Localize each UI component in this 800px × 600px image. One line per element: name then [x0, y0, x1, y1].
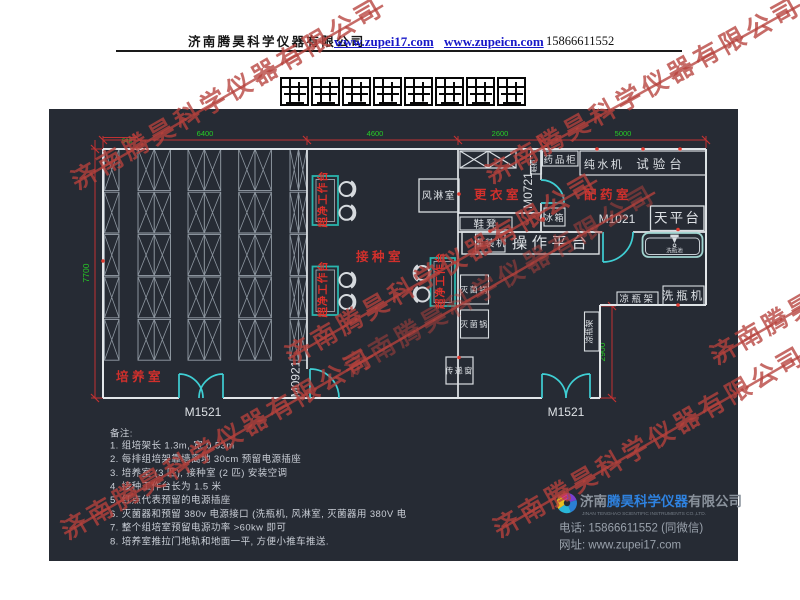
- svg-text:济南腾昊科学仪器有限公司: 济南腾昊科学仪器有限公司: [580, 493, 742, 509]
- svg-text:天平台: 天平台: [654, 211, 701, 226]
- svg-text:超净工作台: 超净工作台: [316, 171, 329, 229]
- svg-text:电话: 15866611552 (同微信): 电话: 15866611552 (同微信): [559, 521, 703, 535]
- svg-text:5000: 5000: [615, 129, 632, 138]
- svg-text:8. 培养室推拉门地轨和地面一平, 方便小推车推送.: 8. 培养室推拉门地轨和地面一平, 方便小推车推送.: [110, 536, 329, 548]
- svg-text:接种室: 接种室: [356, 249, 404, 264]
- svg-text:凉瓶架: 凉瓶架: [584, 320, 594, 344]
- svg-text:洗瓶机: 洗瓶机: [662, 289, 706, 303]
- svg-text:凉瓶架: 凉瓶架: [619, 293, 655, 305]
- svg-text:M1521: M1521: [548, 405, 585, 419]
- svg-text:6. 灭菌器和预留 380v 电源接口 (洗瓶机, 风淋室,: 6. 灭菌器和预留 380v 电源接口 (洗瓶机, 风淋室, 灭菌器用 380V…: [110, 508, 407, 520]
- svg-text:2600: 2600: [492, 129, 509, 138]
- svg-text:6400: 6400: [197, 129, 214, 138]
- svg-text:JINAN TENGHAO SCIENTIFIC INSTR: JINAN TENGHAO SCIENTIFIC INSTRUMENTS CO.…: [582, 511, 706, 517]
- svg-text:灭菌锅: 灭菌锅: [460, 319, 489, 329]
- svg-text:网址: www.zupei17.com: 网址: www.zupei17.com: [559, 538, 681, 552]
- svg-text:试验台: 试验台: [636, 157, 686, 172]
- svg-text:传递窗: 传递窗: [445, 366, 474, 376]
- svg-text:风淋室: 风淋室: [422, 189, 457, 202]
- svg-text:4600: 4600: [367, 129, 384, 138]
- svg-text:M1521: M1521: [185, 405, 222, 419]
- svg-text:超净工作台: 超净工作台: [316, 261, 329, 319]
- svg-text:7. 整个组培室预留电源功率 >60kw 即可: 7. 整个组培室预留电源功率 >60kw 即可: [110, 522, 286, 534]
- svg-text:7700: 7700: [81, 263, 91, 282]
- svg-text:洗瓶池: 洗瓶池: [666, 247, 683, 255]
- svg-text:备注:: 备注:: [110, 428, 133, 440]
- svg-text:培养室: 培养室: [116, 369, 164, 384]
- svg-text:更衣室: 更衣室: [474, 187, 522, 202]
